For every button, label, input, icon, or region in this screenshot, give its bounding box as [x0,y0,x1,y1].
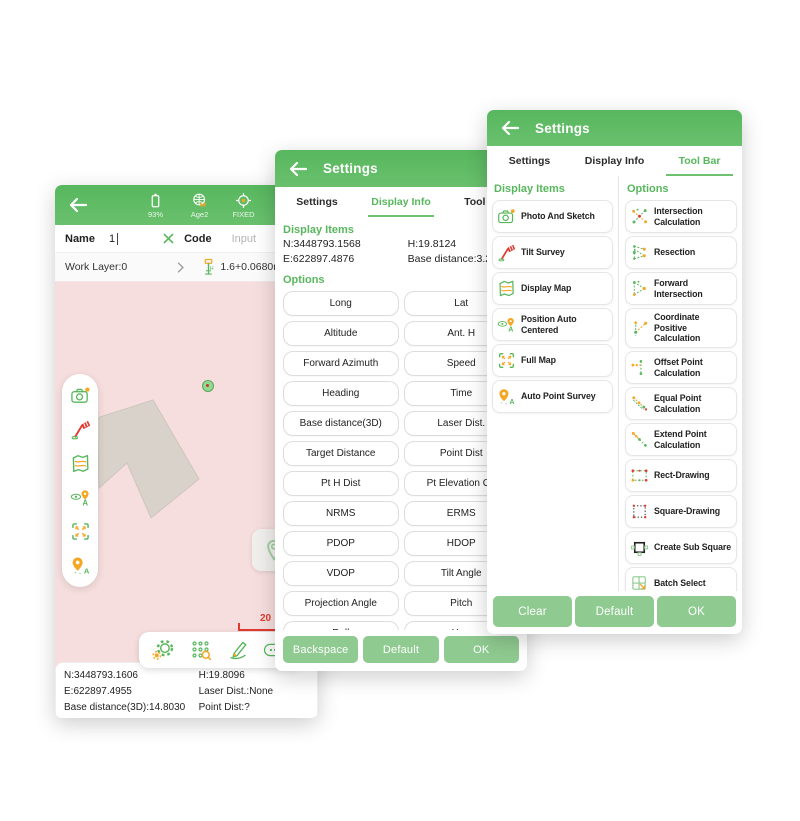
card-label: Tilt Survey [521,247,565,258]
east-coordinate: E:622897.4955 [64,686,199,697]
display-option-button[interactable]: Pt H Dist [283,471,399,496]
name-input[interactable]: 1 [109,233,118,245]
status-label: FIXED [232,210,254,219]
laser-distance: Laser Dist.:None [199,686,309,697]
auto-point-survey-icon: A [497,387,516,406]
page-title: Settings [535,121,590,136]
svg-text:H: H [210,265,214,271]
status-label: Age2 [191,210,209,219]
svg-text:A: A [82,498,88,507]
square-drawing-icon [630,502,649,521]
display-option-button[interactable]: PDOP [283,531,399,556]
default-button[interactable]: Default [363,636,438,663]
sketch-pen-icon[interactable] [226,638,250,662]
tool-option-card[interactable]: Coordinate Positive Calculation [625,308,737,348]
default-button[interactable]: Default [575,596,654,627]
ok-button[interactable]: OK [444,636,519,663]
status-label: 93% [148,210,163,219]
display-option-button[interactable]: Base distance(3D) [283,411,399,436]
tool-option-card[interactable]: Create Sub Square [625,531,737,564]
tool-option-card[interactable]: Forward Intersection [625,272,737,305]
tool-option-card[interactable]: Equal Point Calculation [625,387,737,420]
card-label: Coordinate Positive Calculation [654,312,732,344]
forward-intersection-icon [630,279,649,298]
card-label: Position Auto Centered [521,314,608,335]
north-coordinate: N:3448793.1568 [283,238,408,253]
card-label: Equal Point Calculation [654,393,732,414]
tool-bar-settings-panel: Settings Settings Display Info Tool Bar … [487,110,742,634]
tab-settings[interactable]: Settings [275,187,359,217]
auto-point-survey-icon[interactable]: A [70,555,91,576]
display-items-column: Display Items Photo And Sketch Tilt Surv… [487,176,618,591]
tool-option-card[interactable]: Resection [625,236,737,269]
backspace-button[interactable]: Backspace [283,636,358,663]
display-option-grid: Long Lat Altitude Ant. H Forward Azimuth… [283,291,519,630]
display-items-label: Display Items [494,183,611,195]
display-option-button[interactable]: Projection Angle [283,591,399,616]
svg-text:A: A [510,399,515,406]
card-label: Display Map [521,283,571,294]
offset-point-calculation-icon [630,358,649,377]
extend-point-calculation-icon [630,430,649,449]
card-label: Photo And Sketch [521,211,595,222]
display-option-button[interactable]: VDOP [283,561,399,586]
clear-button[interactable]: Clear [493,596,572,627]
card-label: Batch Select [654,578,706,589]
batch-select-icon [630,574,649,591]
card-label: Rect-Drawing [654,470,710,481]
camera-icon [497,207,516,226]
tab-tool-bar[interactable]: Tool Bar [657,146,742,176]
display-items-label: Display Items [283,224,519,236]
intersection-calculation-icon [630,207,649,226]
card-label: Square-Drawing [654,506,720,517]
settings-tabs: Settings Display Info Tool Bar [487,146,742,176]
tool-option-card[interactable]: Offset Point Calculation [625,351,737,384]
display-info-footer: Backspace Default OK [275,630,527,671]
text-caret [117,233,118,245]
name-label: Name [65,233,95,245]
display-option-button[interactable]: Long [283,291,399,316]
rect-drawing-icon [630,466,649,485]
back-arrow-icon[interactable] [499,117,521,139]
clear-x-icon[interactable] [162,232,175,245]
antenna-height-value: 1.6+0.0680m [220,261,282,273]
create-sub-square-icon [630,538,649,557]
display-option-button[interactable]: NRMS [283,501,399,526]
tool-bar-body: Display Items Photo And Sketch Tilt Surv… [487,176,742,591]
card-label: Offset Point Calculation [654,357,732,378]
tool-option-card[interactable]: Extend Point Calculation [625,423,737,456]
display-option-button[interactable]: Forward Azimuth [283,351,399,376]
north-coordinate: N:3448793.1606 [64,670,199,681]
full-map-icon [497,351,516,370]
display-option-button[interactable]: Altitude [283,321,399,346]
point-list-icon[interactable] [189,638,213,662]
tool-option-card[interactable]: Intersection Calculation [625,200,737,233]
coordinate-positive-calculation-icon [630,319,649,338]
map-icon [497,279,516,298]
options-label: Options [627,183,735,195]
battery-icon [147,192,164,209]
tab-display-info[interactable]: Display Info [359,187,443,217]
map-side-toolbar: A A [62,374,98,587]
display-items-list: Photo And Sketch Tilt Survey Display Map [492,200,613,413]
display-item-card[interactable]: Tilt Survey [492,236,613,269]
options-column: Options Intersection Calculation Resecti… [618,176,742,591]
card-label: Create Sub Square [654,542,731,553]
fixed-icon [235,192,252,209]
back-arrow-icon[interactable] [287,158,309,180]
svg-text:A: A [83,567,89,576]
code-input[interactable]: Input [232,233,256,245]
card-label: Full Map [521,355,556,366]
screenshot-stage: 93% Age2 FIXED 33/48 [0,0,800,821]
svg-text:A: A [508,326,513,334]
tab-display-info[interactable]: Display Info [572,146,657,176]
ok-button[interactable]: OK [657,596,736,627]
work-layer-label: Work Layer:0 [65,261,127,273]
card-label: Extend Point Calculation [654,429,732,450]
east-coordinate: E:622897.4876 [283,253,408,268]
tool-bar-footer: Clear Default OK [487,591,742,634]
code-label: Code [184,233,212,245]
point-distance: Point Dist:? [199,702,309,713]
back-arrow-icon[interactable] [67,194,89,216]
card-label: Forward Intersection [654,278,732,299]
card-label: Resection [654,247,695,258]
resection-icon [630,243,649,262]
tool-option-card[interactable]: Rect-Drawing [625,459,737,492]
display-option-button[interactable]: Heading [283,381,399,406]
height-value: H:19.8096 [199,670,309,681]
display-item-card[interactable]: A Auto Point Survey [492,380,613,413]
base-distance: Base distance(3D):14.8030 [64,702,199,713]
display-item-card[interactable]: Photo And Sketch [492,200,613,233]
live-coordinates: N:3448793.1568 H:19.8124 E:622897.4876 B… [283,238,519,268]
current-position-marker [202,380,214,392]
tab-settings[interactable]: Settings [487,146,572,176]
full-map-icon[interactable] [70,521,91,542]
card-label: Auto Point Survey [521,391,596,402]
gear-icon[interactable] [152,638,176,662]
tool-option-card[interactable]: Batch Select [625,567,737,591]
tilt-pole-icon[interactable] [70,419,91,440]
chevron-right-icon [176,261,185,274]
tilt-pole-icon [497,243,516,262]
camera-icon[interactable] [70,385,91,406]
page-title: Settings [323,161,378,176]
position-auto-centered-icon: A [497,315,516,334]
display-option-button[interactable]: Roll [283,621,399,630]
display-option-button[interactable]: Target Distance [283,441,399,466]
display-item-card[interactable]: A Position Auto Centered [492,308,613,341]
options-label: Options [283,274,519,286]
status-item[interactable]: 93% [139,192,172,219]
display-item-card[interactable]: Full Map [492,344,613,377]
antenna-icon: H [201,258,216,277]
status-item[interactable]: Age2 [183,192,216,219]
map-icon[interactable] [70,453,91,474]
options-list: Intersection Calculation Resection Forwa… [625,200,737,591]
card-label: Intersection Calculation [654,206,732,227]
globe-icon [191,192,208,209]
status-item[interactable]: FIXED [227,192,260,219]
position-auto-centered-icon[interactable]: A [70,487,91,508]
equal-point-calculation-icon [630,394,649,413]
display-item-card[interactable]: Display Map [492,272,613,305]
tool-option-card[interactable]: Square-Drawing [625,495,737,528]
settings-header: Settings [487,110,742,146]
